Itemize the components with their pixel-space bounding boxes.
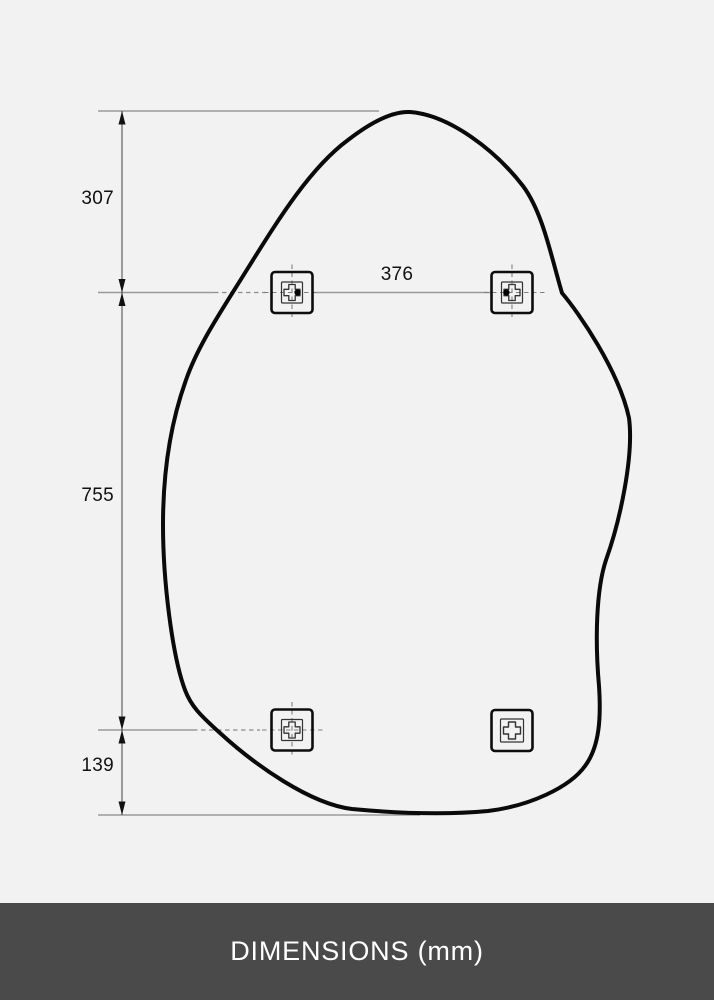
footer-title: DIMENSIONS (mm) xyxy=(230,936,483,967)
mounting-bracket-bottom-right xyxy=(492,710,533,751)
bracket-outer-plate xyxy=(492,710,533,751)
hidden-extension-lines xyxy=(193,293,266,731)
dimension-label-755: 755 xyxy=(52,484,114,508)
mounting-bracket-bottom-left xyxy=(262,702,326,758)
arrow-up-middle xyxy=(119,293,126,307)
dimension-label-307: 307 xyxy=(52,187,114,211)
arrow-down-bottom xyxy=(119,802,126,816)
mounting-bracket-top-left xyxy=(264,265,320,321)
footer-bar: DIMENSIONS (mm) xyxy=(0,903,714,1000)
arrow-down-upper xyxy=(119,279,126,293)
dimension-diagram-page: 307 376 755 139 DIMENSIONS (mm) xyxy=(0,0,714,1000)
anchor-dot-icon xyxy=(503,289,509,295)
arrow-up-lower xyxy=(119,730,126,744)
dimension-label-139: 139 xyxy=(52,754,114,778)
arrow-down-middle xyxy=(119,717,126,731)
arrow-up-top xyxy=(119,111,126,125)
anchor-dot-icon xyxy=(294,289,300,295)
dimension-label-376: 376 xyxy=(347,263,447,287)
vertical-dimension-line xyxy=(119,111,126,815)
mirror-outline xyxy=(163,112,630,813)
screw-cross-icon xyxy=(504,722,521,739)
mounting-bracket-top-right xyxy=(484,265,548,321)
